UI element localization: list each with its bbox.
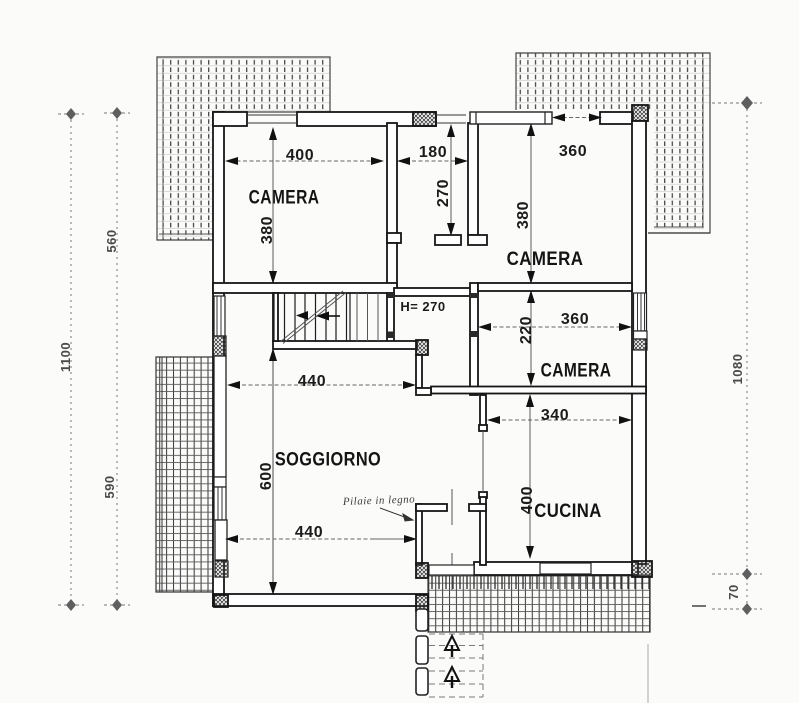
svg-text:440: 440 <box>295 524 323 541</box>
svg-text:CAMERA: CAMERA <box>541 359 612 381</box>
svg-text:SOGGIORNO: SOGGIORNO <box>275 448 381 469</box>
svg-text:1080: 1080 <box>730 354 745 385</box>
svg-text:600: 600 <box>258 462 275 490</box>
svg-text:380: 380 <box>515 201 532 229</box>
svg-text:340: 340 <box>541 407 569 424</box>
svg-text:H= 270: H= 270 <box>400 299 445 314</box>
svg-text:1100: 1100 <box>58 342 73 372</box>
svg-text:180: 180 <box>419 144 447 161</box>
svg-text:560: 560 <box>104 229 119 252</box>
svg-text:CAMERA: CAMERA <box>249 186 320 208</box>
svg-text:70: 70 <box>726 584 741 599</box>
svg-text:400: 400 <box>286 147 314 164</box>
svg-text:CUCINA: CUCINA <box>534 500 602 521</box>
svg-text:220: 220 <box>518 316 535 344</box>
svg-text:590: 590 <box>102 475 117 498</box>
svg-text:400: 400 <box>519 486 536 514</box>
svg-text:380: 380 <box>259 216 276 244</box>
svg-text:Pilaie in legno: Pilaie in legno <box>342 493 416 508</box>
svg-text:CAMERA: CAMERA <box>507 248 584 269</box>
svg-text:360: 360 <box>561 311 589 328</box>
svg-text:440: 440 <box>298 373 326 390</box>
svg-text:270: 270 <box>435 179 452 207</box>
svg-text:360: 360 <box>559 143 587 160</box>
